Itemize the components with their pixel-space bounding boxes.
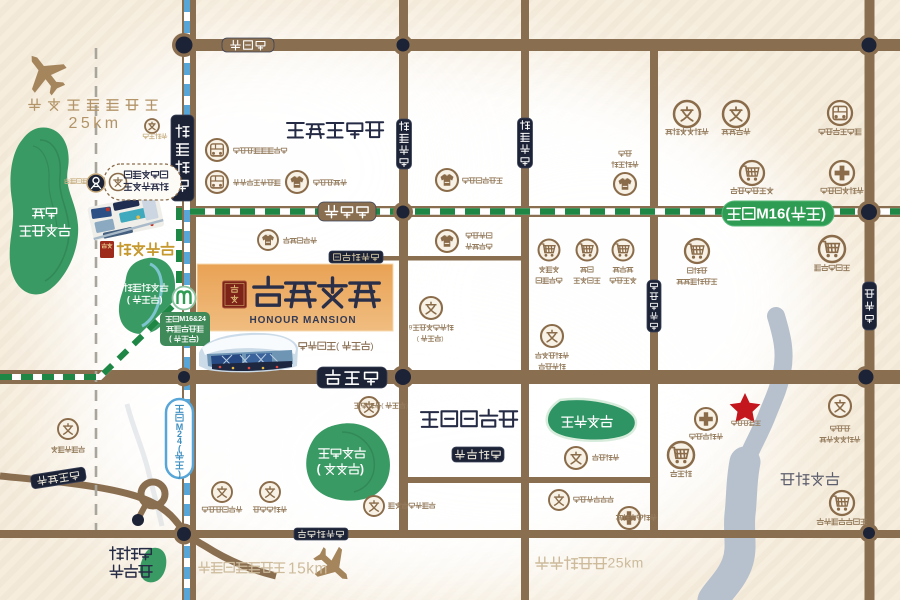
svg-text:(: ( — [317, 462, 321, 476]
svg-text:(: ( — [127, 294, 130, 304]
svg-text:9: 9 — [409, 325, 413, 332]
svg-text:): ) — [406, 403, 408, 410]
svg-text:15km: 15km — [288, 561, 328, 578]
svg-text:25km: 25km — [68, 115, 121, 132]
svg-text:): ) — [821, 205, 826, 222]
svg-text:M16(: M16( — [756, 205, 790, 222]
svg-text:HONOUR MANSION: HONOUR MANSION — [249, 315, 356, 326]
svg-text:): ) — [441, 336, 443, 343]
svg-text:25km: 25km — [608, 555, 644, 571]
svg-text:): ) — [178, 469, 181, 479]
svg-text:): ) — [360, 462, 364, 476]
svg-text:): ) — [370, 341, 373, 352]
svg-text:M16&24: M16&24 — [179, 316, 206, 323]
svg-text:): ) — [160, 294, 163, 304]
svg-text:(: ( — [178, 443, 181, 453]
